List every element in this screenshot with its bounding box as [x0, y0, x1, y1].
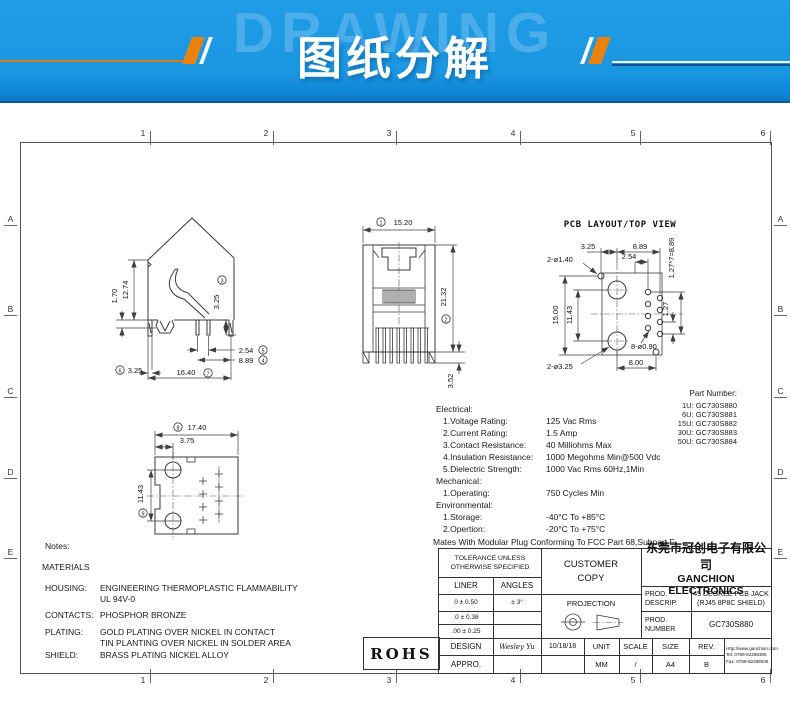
- banner-left-line: [0, 60, 187, 62]
- spec-label: 1.Operating:: [436, 487, 546, 499]
- zone-col-bot-6: 6: [756, 675, 770, 686]
- spec-value: -20°C To +75°C: [546, 523, 605, 535]
- bottom-view-drawing: 8 17.40 3.75 11.43 9: [135, 412, 315, 552]
- side-view-drawing: 1.70 12.74 3.25 3 2.54 5 8.89 4 6 3.25 1…: [108, 190, 323, 402]
- liner-header: LINER: [439, 577, 493, 594]
- spec-label: 2.Opertion:: [436, 523, 546, 535]
- tolerance-header: TOLERANCE UNLESS OTHERWISE SPECIFIED: [439, 549, 541, 577]
- zone-row-right-B: B: [774, 303, 787, 316]
- prod-descrip-value: 45 DEGREE PCB JACK (RJ45 8P8C SHIELD): [691, 586, 771, 611]
- zone-col-bot-5: 5: [626, 675, 640, 686]
- spec-row: 5.Dielectric Strength:1000 Vac Rms 60Hz,…: [436, 463, 686, 475]
- ref-5: 5: [261, 348, 264, 354]
- tol-row1-liner: 0 ± 0.50: [439, 594, 493, 611]
- rev-label: REV.: [689, 638, 724, 655]
- pcb-view-title: PCB LAYOUT/TOP VIEW: [564, 220, 677, 230]
- angles-header: ANGLES: [493, 577, 541, 594]
- part-number-title: Part Number:: [645, 389, 737, 398]
- unit-value: MM: [584, 655, 619, 673]
- zone-col-bot-2: 2: [259, 675, 273, 686]
- dim-21-32: 21.32: [439, 288, 448, 307]
- spec-label: 1.Storage:: [436, 511, 546, 523]
- zone-col-top-2: 2: [259, 128, 273, 139]
- zone-row-left-B: B: [4, 303, 17, 316]
- zone-row-right-D: D: [774, 466, 787, 479]
- plating-value2: TIN PLANTING OVER NICKEL IN SOLDER AREA: [100, 638, 291, 648]
- zone-col-top-5: 5: [626, 128, 640, 139]
- materials-title: MATERIALS: [42, 562, 90, 572]
- dim-3-52: 3.52: [446, 374, 455, 389]
- dim-15-00: 15.00: [551, 306, 560, 325]
- spec-label: 2.Current Rating:: [436, 427, 546, 439]
- pcb-layout-drawing: PCB LAYOUT/TOP VIEW 3.25 8.89 2.54: [545, 213, 755, 398]
- notes-title: Notes:: [45, 541, 70, 551]
- electrical-title: Electrical:: [436, 403, 686, 415]
- housing-outline: [148, 218, 234, 336]
- dim-8-89: 8.89: [239, 356, 254, 365]
- zone-row-left-D: D: [4, 466, 17, 479]
- jack-front-outline: [363, 242, 435, 363]
- tol-row2-liner: .0 ± 0.38: [439, 611, 493, 624]
- holes-3-25-label: 2-ø3.25: [547, 362, 573, 371]
- spec-value: 1000 Megohms Min@500 Vdc: [546, 451, 660, 463]
- spec-row: 1.Voltage Rating:125 Vac Rms: [436, 415, 686, 427]
- page-title: 图纸分解: [0, 22, 790, 87]
- spec-row: 2.Current Rating:1.5 Amp: [436, 427, 686, 439]
- spec-label: 3.Contact Resistance:: [436, 439, 546, 451]
- projection-label: PROJECTION: [541, 594, 641, 608]
- banner: DRAWING 图纸分解: [0, 0, 790, 103]
- dim-11-43: 11.43: [565, 306, 574, 324]
- drawing-page: DRAWING 图纸分解 1 2 3 4 5 6 1 2 3 4 5 6 A B…: [0, 0, 790, 712]
- spec-row: 2.Opertion:-20°C To +75°C: [436, 523, 686, 535]
- unit-label: UNIT: [584, 638, 619, 655]
- dim-16-40: 16.40: [177, 368, 196, 377]
- spec-label: 5.Dielectric Strength:: [436, 463, 546, 475]
- holes-1-40-label: 2-ø1.40: [547, 255, 573, 264]
- size-label: SIZE: [652, 638, 689, 655]
- company-block: 东莞市冠创电子有限公司 GANCHION ELECTRONICS: [641, 549, 771, 586]
- dim-8-00: 8.00: [629, 358, 644, 367]
- banner-right-line: [612, 61, 790, 63]
- ref-2: 2: [444, 317, 447, 323]
- appro-label: APPRO.: [439, 655, 493, 673]
- dim-3-25-left: 3.25: [128, 366, 143, 375]
- ref-7: 7: [206, 371, 209, 377]
- dim-15-20: 15.20: [394, 218, 413, 227]
- dim-3-75: 3.75: [180, 436, 195, 445]
- company-fax: Fax: 0769-82288536: [726, 659, 768, 666]
- zone-row-right-A: A: [774, 213, 787, 226]
- housing-value: ENGINEERING THERMOPLASTIC FLAMMABILITY: [100, 583, 298, 593]
- zone-col-top-3: 3: [382, 128, 396, 139]
- zone-row-right-C: C: [774, 385, 787, 398]
- mechanical-title: Mechanical:: [436, 475, 686, 487]
- holes-0-90-label: 8-ø0.90: [631, 342, 657, 351]
- prod-number-label: PROD. NUMBER: [641, 611, 691, 638]
- ref-4: 4: [261, 358, 264, 364]
- spec-label: 4.Insulation Resistance:: [436, 451, 546, 463]
- prod-descrip-label: PROD. DESCRIP.: [641, 586, 691, 611]
- pitch-label: 1.27*7=8.89: [667, 238, 676, 279]
- spec-value: 1.5 Amp: [546, 427, 577, 439]
- prod-number-value: GC730S880: [691, 611, 771, 638]
- banner-right-line2: [612, 64, 790, 66]
- mates-note: Mates With Modular Plug Conforming To FC…: [433, 537, 675, 547]
- specifications: Electrical: 1.Voltage Rating:125 Vac Rms…: [436, 403, 686, 535]
- ref-1: 1: [379, 220, 382, 226]
- shield-value: BRASS PLATING NICKEL ALLOY: [100, 650, 229, 660]
- dim-12-74: 12.74: [121, 281, 130, 300]
- customer-copy: CUSTOMER COPY: [541, 549, 641, 594]
- front-view-drawing: 1 15.20 21.32 2 3.52: [335, 200, 495, 405]
- zone-row-left-E: E: [4, 546, 17, 559]
- dim-2-54: 2.54: [622, 252, 637, 261]
- zone-row-left-A: A: [4, 213, 17, 226]
- zone-col-top-1: 1: [136, 128, 150, 139]
- spec-row: 3.Contact Resistance:40 Milliohms Max: [436, 439, 686, 451]
- ref-6: 6: [118, 368, 121, 374]
- rohs-mark: ROHS: [363, 637, 440, 670]
- housing-value2: UL 94V-0: [100, 594, 135, 604]
- ref-9: 9: [141, 511, 144, 517]
- spec-value: -40°C To +85°C: [546, 511, 605, 523]
- spec-label: 1.Voltage Rating:: [436, 415, 546, 427]
- title-block: TOLERANCE UNLESS OTHERWISE SPECIFIED LIN…: [438, 548, 772, 674]
- dim-3-25: 3.25: [581, 242, 596, 251]
- spec-row: 4.Insulation Resistance:1000 Megohms Min…: [436, 451, 686, 463]
- pcb-dimensions: 3.25 8.89 2.54 2-ø1.40 1.27*7=8.89 1.27 …: [547, 238, 685, 371]
- company-name-cn: 东莞市冠创电子有限公司: [641, 539, 771, 573]
- plating-label: PLATING:: [45, 627, 83, 637]
- bottom-view-dimensions: 8 17.40 3.75 11.43 9: [136, 423, 238, 521]
- shield-label: SHIELD:: [45, 650, 78, 660]
- dim-3-25-pin: 3.25: [212, 295, 221, 310]
- contact-info: Http://www.ganchion.com Tel: 0769-822883…: [724, 638, 773, 673]
- plating-value: GOLD PLATING OVER NICKEL IN CONTACT: [100, 627, 275, 637]
- zone-col-bot-4: 4: [506, 675, 520, 686]
- contacts-value: PHOSPHOR BRONZE: [100, 610, 186, 620]
- zone-col-top-6: 6: [756, 128, 770, 139]
- scale-value: /: [619, 655, 652, 673]
- ref-3: 3: [220, 278, 223, 284]
- zone-col-top-4: 4: [506, 128, 520, 139]
- zone-col-bot-3: 3: [382, 675, 396, 686]
- spec-row: 1.Operating:750 Cycles Min: [436, 487, 686, 499]
- housing-label: HOUSING:: [45, 583, 87, 593]
- scale-label: SCALE: [619, 638, 652, 655]
- dim-11-43-bottom: 11.43: [136, 485, 145, 503]
- zone-row-left-C: C: [4, 385, 17, 398]
- projection-symbol-icon: [561, 611, 623, 633]
- zone-row-right-E: E: [774, 546, 787, 559]
- size-value: A4: [652, 655, 689, 673]
- spec-value: 40 Milliohms Max: [546, 439, 612, 451]
- spec-value: 750 Cycles Min: [546, 487, 604, 499]
- spec-value: 1000 Vac Rms 60Hz,1Min: [546, 463, 644, 475]
- spec-value: 125 Vac Rms: [546, 415, 596, 427]
- design-label: DESIGN: [439, 638, 493, 655]
- dim-8-89: 8.89: [633, 242, 648, 251]
- contacts-label: CONTACTS:: [45, 610, 93, 620]
- tol-row1-angles: ± 3°: [493, 594, 541, 611]
- ref-8: 8: [176, 425, 179, 431]
- dim-17-40: 17.40: [188, 423, 207, 432]
- dim-1-70: 1.70: [110, 289, 119, 304]
- environmental-title: Environmental:: [436, 499, 686, 511]
- zone-col-bot-1: 1: [136, 675, 150, 686]
- dim-2-54: 2.54: [239, 346, 254, 355]
- dim-1-27: 1.27: [661, 302, 670, 317]
- design-name: Wesley Yu: [493, 638, 541, 655]
- tol-row3-liner: .00 ± 0.25: [439, 624, 493, 638]
- rev-value: B: [689, 655, 724, 673]
- spec-row: 1.Storage:-40°C To +85°C: [436, 511, 686, 523]
- design-date: 10/18/18: [541, 638, 584, 655]
- bottom-outline: [147, 452, 245, 540]
